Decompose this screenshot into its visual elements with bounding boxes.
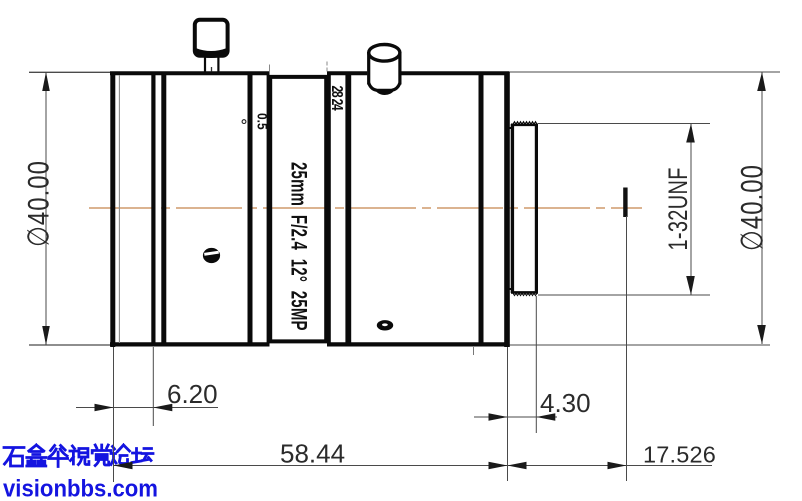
svg-text:4.30: 4.30 <box>540 388 591 418</box>
svg-text:17.526: 17.526 <box>643 442 716 468</box>
svg-text:25mm F/2.4 12° 25MP: 25mm F/2.4 12° 25MP <box>287 162 311 331</box>
svg-text:visionbbs.com: visionbbs.com <box>3 476 158 501</box>
svg-text:1-32UNF: 1-32UNF <box>663 167 694 250</box>
svg-text:∅40.00: ∅40.00 <box>734 164 769 251</box>
svg-text:58.44: 58.44 <box>280 439 345 469</box>
svg-text:0.5: 0.5 <box>254 113 270 130</box>
svg-text:28 24: 28 24 <box>329 86 347 111</box>
svg-text:6.20: 6.20 <box>167 379 218 409</box>
svg-text:∅40.00: ∅40.00 <box>21 160 55 247</box>
